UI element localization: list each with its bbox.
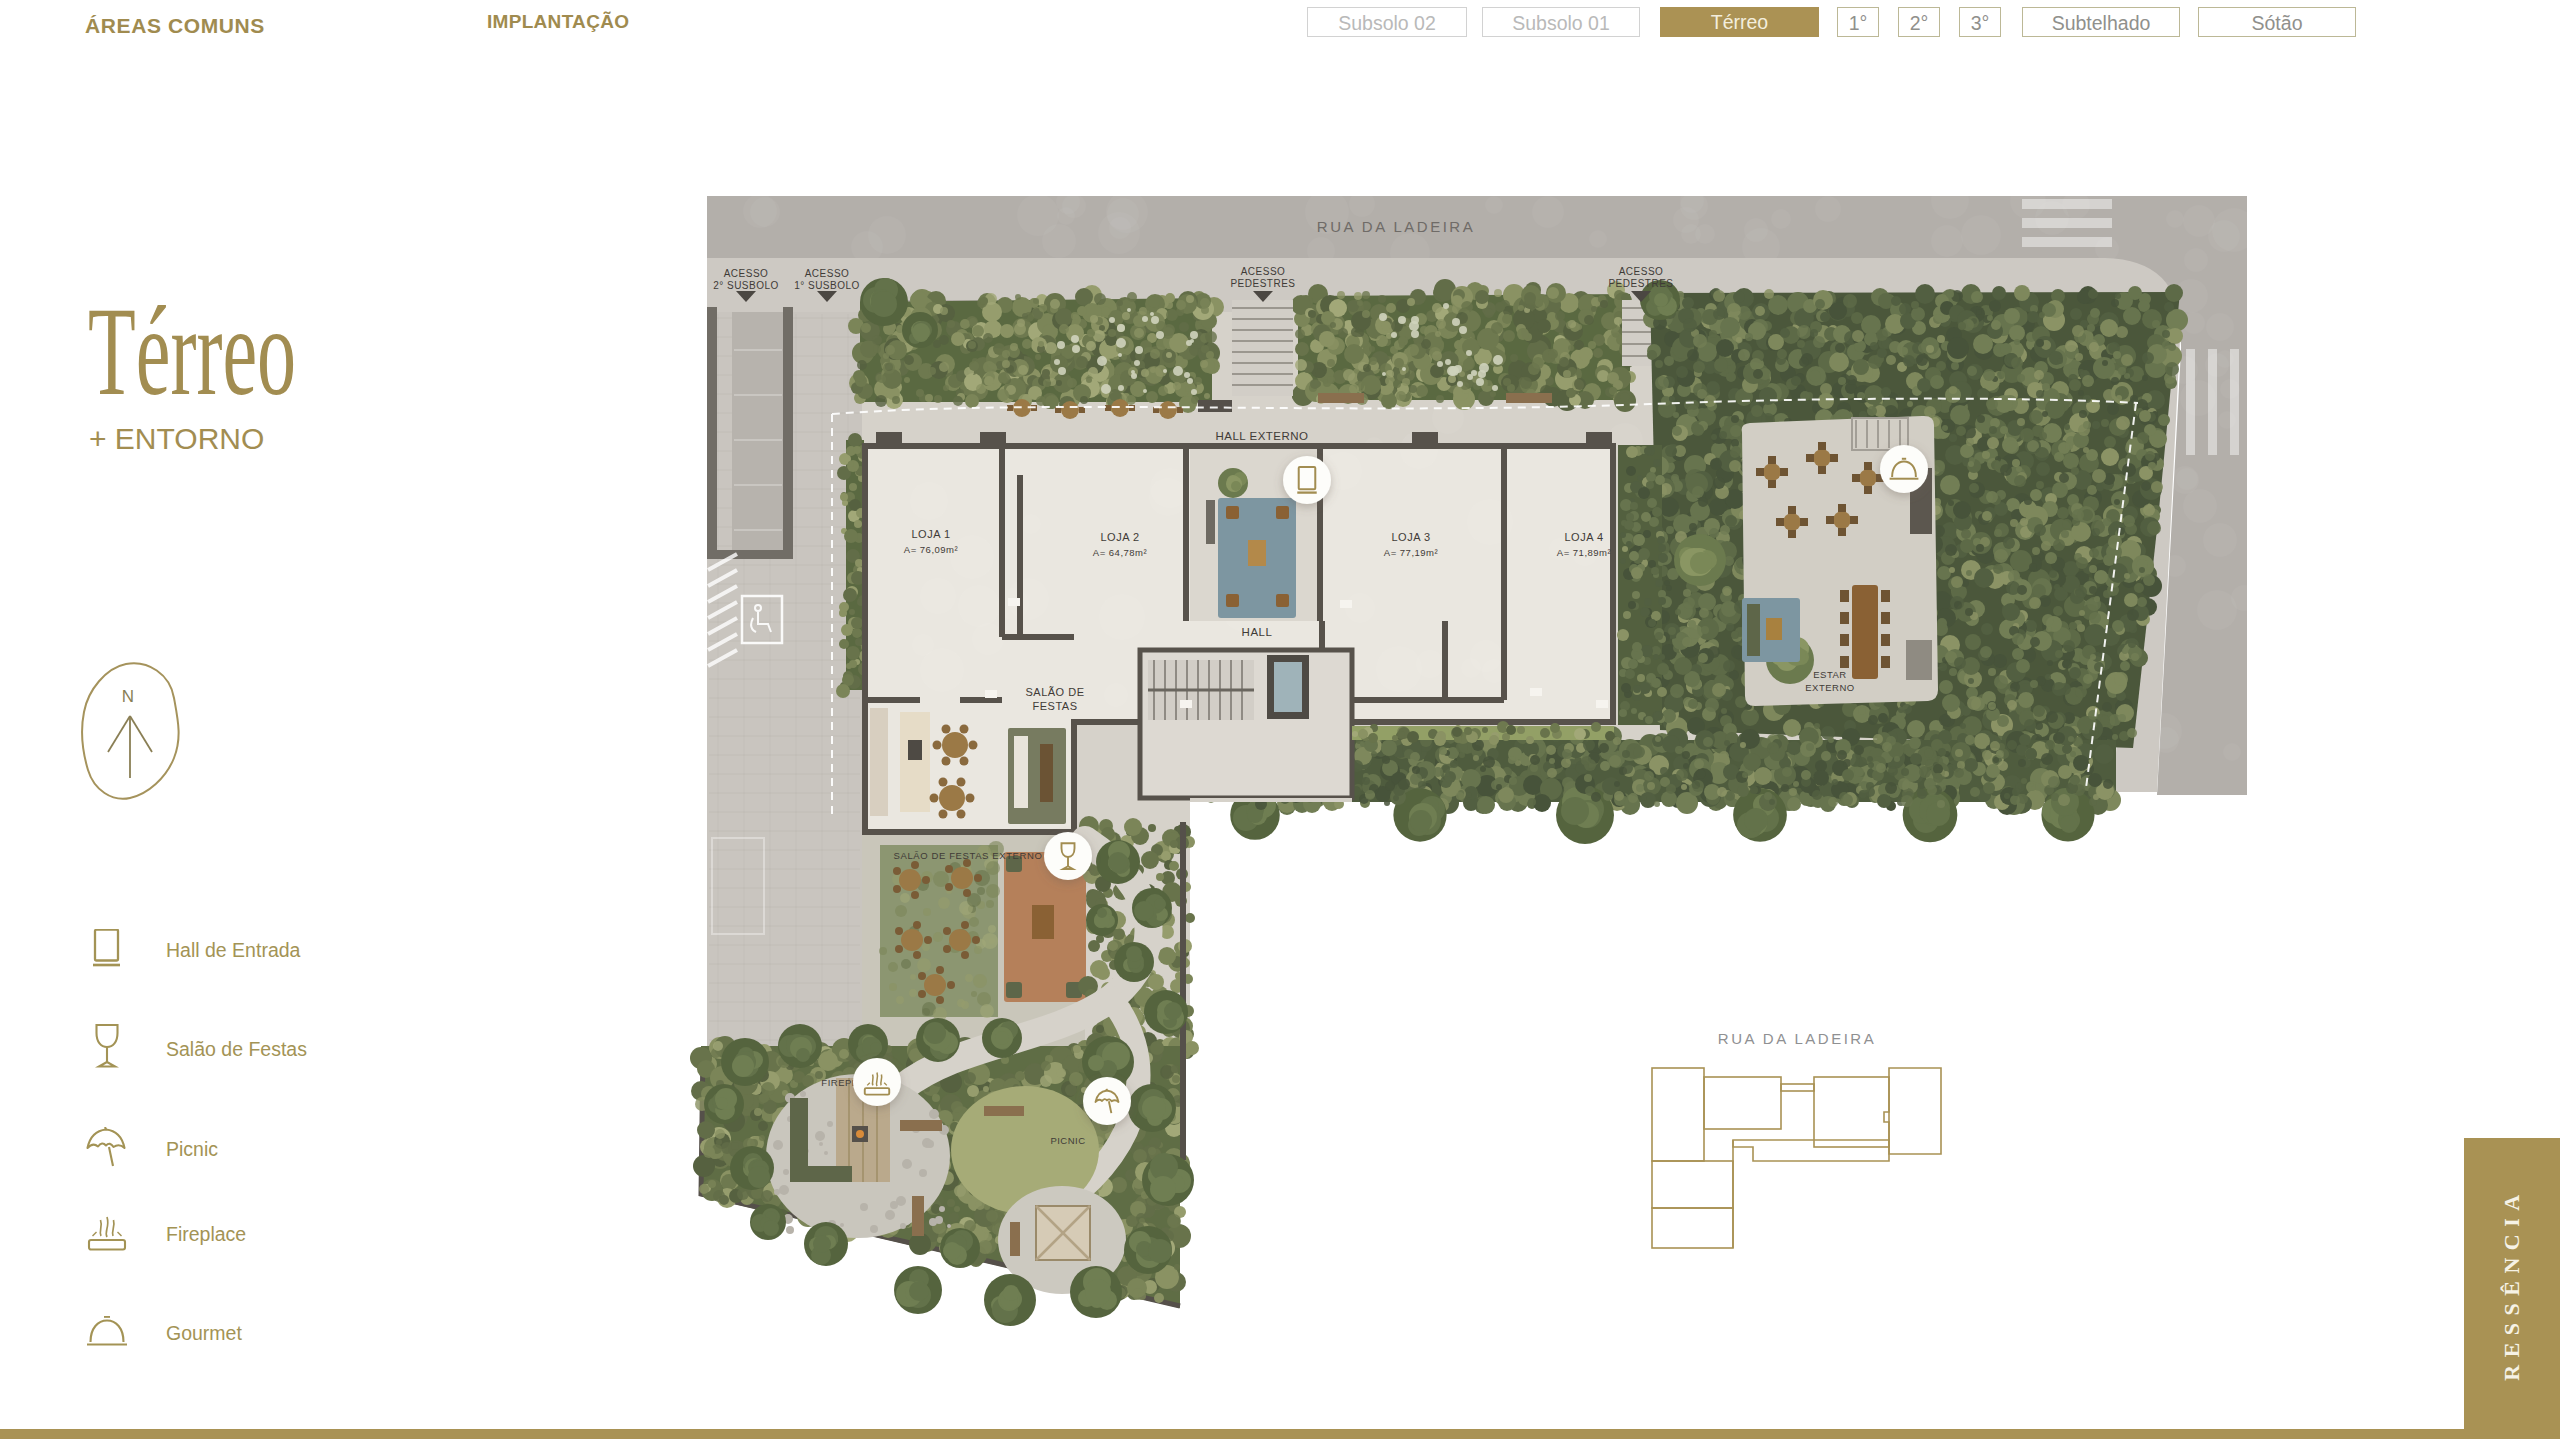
svg-text:2° SUSBOLO: 2° SUSBOLO [713,280,779,291]
svg-text:LOJA 4: LOJA 4 [1564,531,1603,543]
svg-text:ACESSO: ACESSO [724,268,769,279]
svg-text:PICNIC: PICNIC [1050,1135,1085,1146]
svg-text:LOJA 2: LOJA 2 [1100,531,1139,543]
svg-text:N: N [122,687,134,706]
svg-text:RUA DA LADEIRA: RUA DA LADEIRA [1317,218,1475,235]
svg-text:LOJA 1: LOJA 1 [911,528,950,540]
svg-text:LOJA 3: LOJA 3 [1391,531,1430,543]
svg-text:PEDESTRES: PEDESTRES [1608,278,1673,289]
svg-text:A= 76,09m²: A= 76,09m² [904,544,958,555]
svg-text:A= 71,89m²: A= 71,89m² [1557,547,1611,558]
svg-text:EXTERNO: EXTERNO [1805,682,1854,693]
svg-text:ACESSO: ACESSO [1241,266,1286,277]
svg-text:A= 77,19m²: A= 77,19m² [1384,547,1438,558]
svg-text:RUA DA LADEIRA: RUA DA LADEIRA [1718,1030,1876,1047]
svg-text:A= 64,78m²: A= 64,78m² [1093,547,1147,558]
svg-text:FESTAS: FESTAS [1033,700,1078,712]
svg-text:HALL: HALL [1242,626,1273,638]
svg-text:ESTAR: ESTAR [1813,669,1846,680]
svg-text:PEDESTRES: PEDESTRES [1230,278,1295,289]
svg-text:ACESSO: ACESSO [805,268,850,279]
svg-text:1° SUSBOLO: 1° SUSBOLO [794,280,860,291]
svg-text:SALÃO DE FESTAS EXTERNO: SALÃO DE FESTAS EXTERNO [894,850,1043,861]
svg-text:SALÃO DE: SALÃO DE [1025,686,1084,698]
svg-text:HALL EXTERNO: HALL EXTERNO [1215,430,1308,442]
svg-text:ACESSO: ACESSO [1619,266,1664,277]
